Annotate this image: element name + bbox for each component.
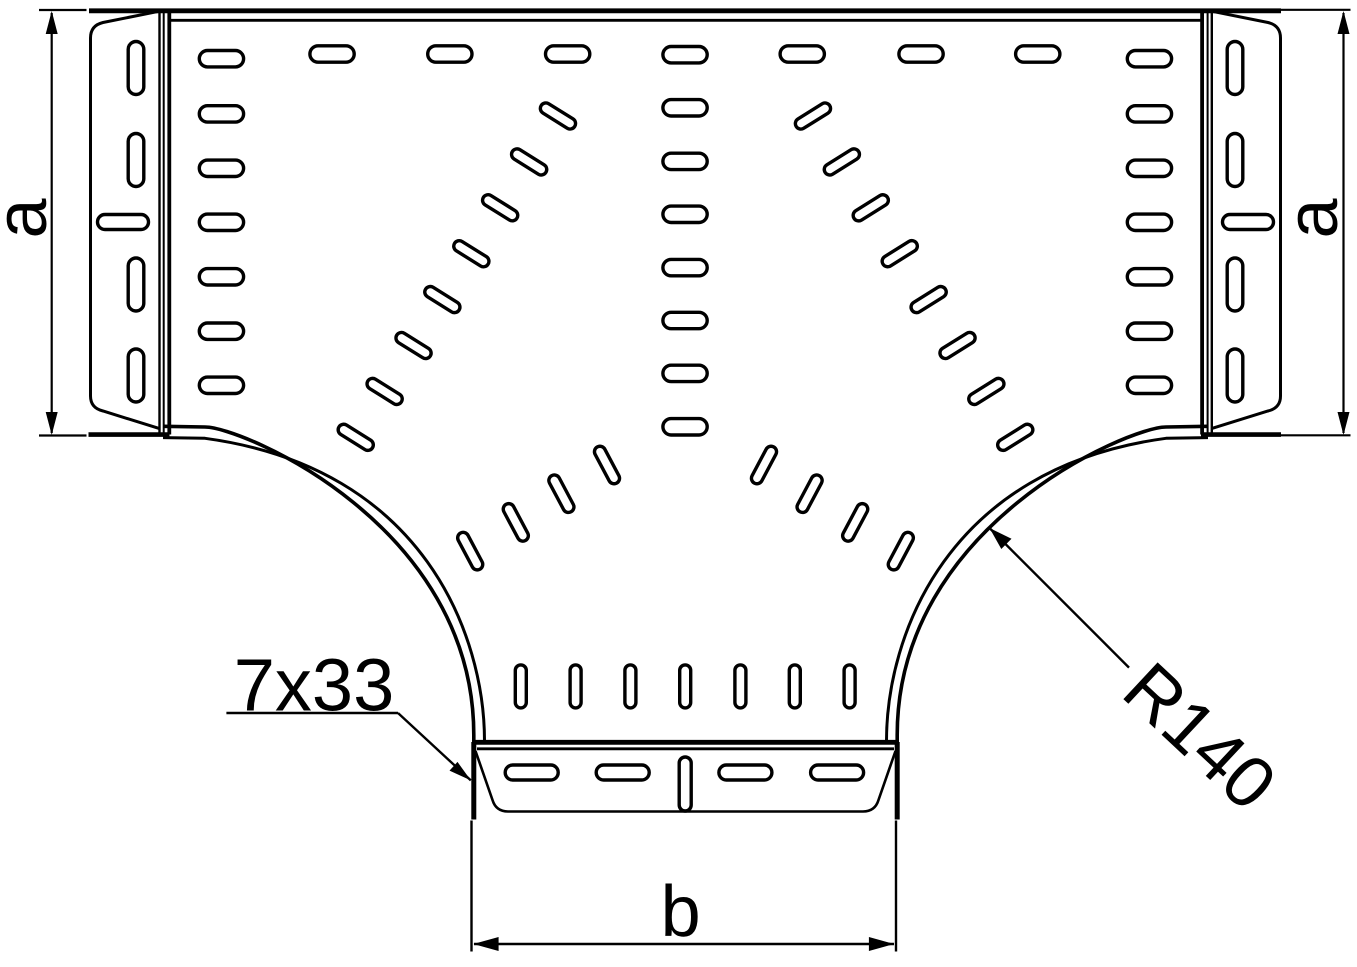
svg-text:a: a bbox=[1273, 198, 1353, 239]
svg-text:b: b bbox=[661, 872, 701, 952]
svg-text:a: a bbox=[0, 198, 62, 239]
